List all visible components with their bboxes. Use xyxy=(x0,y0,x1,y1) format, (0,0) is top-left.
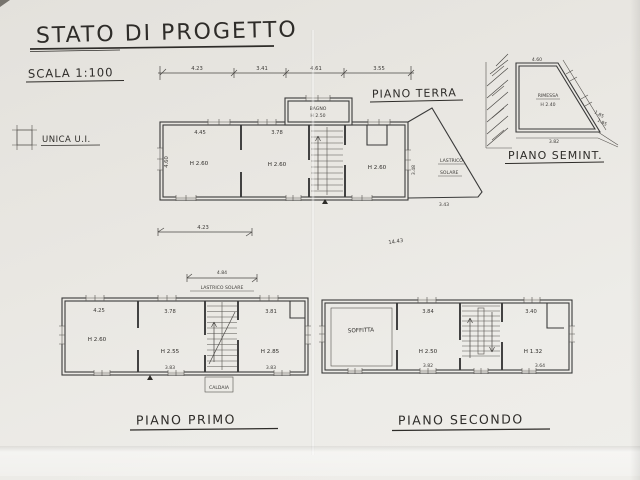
lastrico-bottom-dim: 3.43 xyxy=(439,202,449,208)
entrance-marker-triangle xyxy=(147,375,153,380)
terra-staircase xyxy=(311,127,343,195)
terra-closet xyxy=(367,125,387,145)
semint-room-height: H 2.40 xyxy=(540,102,555,108)
room-dim: 3.84 xyxy=(422,309,434,315)
secondo-soffitta-room xyxy=(331,308,392,366)
dim-text: 4.23 xyxy=(191,66,203,72)
dim-text: 3.41 xyxy=(256,66,268,72)
room-bottom-dim: 3.64 xyxy=(535,363,545,369)
terra-windows xyxy=(157,95,411,201)
lastrico-label-2: SOLARE xyxy=(440,170,459,176)
room-height: H 1.32 xyxy=(524,349,542,355)
room-dim: 3.81 xyxy=(265,309,277,315)
primo-label-underline xyxy=(130,429,278,431)
semint-top-dim: 4.60 xyxy=(532,57,542,63)
terra-floor-label: PIANO TERRA xyxy=(372,86,457,100)
below-dim: 4.23 xyxy=(197,225,209,231)
semint-floor-label: PIANO SEMINT. xyxy=(508,149,603,162)
semint-hatch-stairs xyxy=(486,54,512,148)
secondo-staircase xyxy=(462,306,500,358)
dim-text: 4.61 xyxy=(310,66,322,72)
room-height: H 2.55 xyxy=(161,349,180,355)
header: STATO DI PROGETTO SCALA 1:100 UNICA U.I. xyxy=(12,17,298,150)
primo-floor-label: PIANO PRIMO xyxy=(136,412,236,428)
scale-underline xyxy=(26,81,124,83)
room-dim: 3.78 xyxy=(271,130,283,136)
lastrico-label-1: LASTRICO xyxy=(440,158,463,164)
room-height: H 2.60 xyxy=(88,337,107,343)
primo-closet xyxy=(290,301,305,318)
semint-bottom-dim: 3.82 xyxy=(549,139,559,145)
legend-label: UNICA U.I. xyxy=(42,135,91,145)
piano-seminterrato-plan: 4.60 RIMESSA H 2.40 3.82 1.85 1.95 PIANO… xyxy=(486,54,618,164)
semint-room-label: RIMESSA xyxy=(538,93,559,99)
dim-text: 3.55 xyxy=(373,66,385,72)
total-dim: 14.43 xyxy=(388,238,404,246)
room-dim: 3.40 xyxy=(525,309,537,315)
primo-caldaia-box: CALDAIA xyxy=(205,377,233,392)
bagno-label: BAGNO xyxy=(310,106,327,112)
piano-primo-plan: 4.84 LASTRICO SOLARE xyxy=(59,270,311,430)
primo-staircase xyxy=(207,302,237,370)
secondo-closet xyxy=(547,303,564,328)
secondo-floor-label: PIANO SECONDO xyxy=(398,411,524,427)
piano-terra-plan: 4.23 3.41 4.61 3.55 xyxy=(157,66,482,246)
room-height: H 2.60 xyxy=(190,161,209,167)
room-bottom-dim: 3.83 xyxy=(165,365,175,371)
scale-label: SCALA 1:100 xyxy=(28,65,114,80)
lastrico-side-dim: 3.48 xyxy=(411,165,417,175)
secondo-label-underline xyxy=(392,429,550,431)
room-height: H 2.60 xyxy=(268,162,287,168)
room-bottom-dim: 3.83 xyxy=(266,365,276,371)
primo-lastrico-note: 4.84 LASTRICO SOLARE xyxy=(187,270,257,291)
legend-underline xyxy=(41,145,100,146)
primo-lastrico-label: LASTRICO SOLARE xyxy=(201,285,244,291)
room-dim: 4.25 xyxy=(93,308,105,314)
room-dim: 4.45 xyxy=(194,130,206,136)
paper-corner-shadow xyxy=(0,0,10,7)
primo-lastrico-dim: 4.84 xyxy=(217,270,227,276)
caldaia-label: CALDAIA xyxy=(209,385,230,391)
semint-extension xyxy=(516,60,618,147)
room-bottom-dim: 3.82 xyxy=(423,363,433,369)
title-underline-2 xyxy=(30,50,120,52)
floorplan-drawing: STATO DI PROGETTO SCALA 1:100 UNICA U.I.… xyxy=(0,0,640,480)
room-height: H 2.60 xyxy=(368,165,387,171)
side-dim: 4.60 xyxy=(164,156,170,168)
unica-ui-symbol xyxy=(12,125,37,150)
room-height: H 2.85 xyxy=(261,349,280,355)
room-dim: 3.78 xyxy=(164,309,176,315)
mid-dims: 4.23 14.43 xyxy=(158,225,404,246)
room-height: H 2.50 xyxy=(419,349,438,355)
page-title: STATO DI PROGETTO xyxy=(36,17,298,48)
scanned-drawing-sheet: STATO DI PROGETTO SCALA 1:100 UNICA U.I.… xyxy=(0,0,640,480)
semint-label-underline xyxy=(505,162,604,164)
soffitta-label: SOFFITTA xyxy=(348,328,375,335)
terra-dim-chain: 4.23 3.41 4.61 3.55 xyxy=(158,66,414,80)
bagno-height: H 2.50 xyxy=(310,113,325,119)
piano-secondo-plan: SOFFITTA 3.84 H 2.50 3.40 H 1.32 3 xyxy=(319,297,575,431)
terra-lastrico-solare: LASTRICO SOLARE 3.48 3.43 xyxy=(408,108,482,208)
